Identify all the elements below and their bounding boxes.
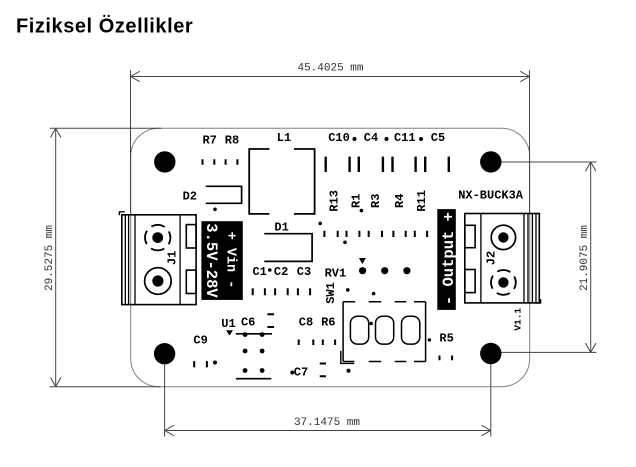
svg-text:C2: C2 <box>274 265 288 279</box>
svg-text:V1.1: V1.1 <box>512 308 523 331</box>
svg-text:C1: C1 <box>252 265 266 279</box>
svg-text:C3: C3 <box>297 265 311 279</box>
svg-text:R11: R11 <box>415 190 429 212</box>
svg-text:NX-BUCK3A: NX-BUCK3A <box>458 189 524 203</box>
svg-text:C6: C6 <box>241 316 255 330</box>
svg-text:R3: R3 <box>369 194 383 208</box>
svg-text:D1: D1 <box>274 220 288 234</box>
svg-text:Fiziksel Özellikler: Fiziksel Özellikler <box>16 15 193 38</box>
svg-text:R6: R6 <box>321 316 335 330</box>
svg-text:J1: J1 <box>165 251 179 265</box>
svg-text:R13: R13 <box>328 190 342 212</box>
svg-text:RV1: RV1 <box>325 266 347 280</box>
svg-text:45.4025 mm: 45.4025 mm <box>297 63 363 75</box>
svg-text:C11: C11 <box>394 131 416 145</box>
svg-text:C9: C9 <box>193 333 207 347</box>
svg-text:R8: R8 <box>225 134 239 148</box>
svg-text:J2: J2 <box>485 251 499 265</box>
svg-text:C8: C8 <box>299 316 313 330</box>
svg-text:R1: R1 <box>349 194 363 208</box>
svg-text:SW1: SW1 <box>324 282 338 304</box>
svg-text:L1: L1 <box>277 131 291 145</box>
svg-text:C7: C7 <box>294 366 308 380</box>
svg-text:3.5V-28V: 3.5V-28V <box>202 223 220 298</box>
svg-text:R5: R5 <box>439 331 453 345</box>
svg-text:R7: R7 <box>202 134 216 148</box>
svg-text:C5: C5 <box>431 131 445 145</box>
svg-text:21.9075 mm: 21.9075 mm <box>579 225 591 291</box>
svg-text:29.5275 mm: 29.5275 mm <box>44 225 56 291</box>
svg-text:C4: C4 <box>364 131 378 145</box>
svg-text:37.1475 mm: 37.1475 mm <box>294 417 360 429</box>
svg-text:- Output +: - Output + <box>440 212 458 305</box>
svg-text:U1: U1 <box>221 317 235 331</box>
svg-text:C10: C10 <box>328 131 350 145</box>
svg-text:D2: D2 <box>183 190 197 204</box>
svg-text:+ Vin -: + Vin - <box>222 232 237 289</box>
svg-text:R4: R4 <box>393 194 407 208</box>
